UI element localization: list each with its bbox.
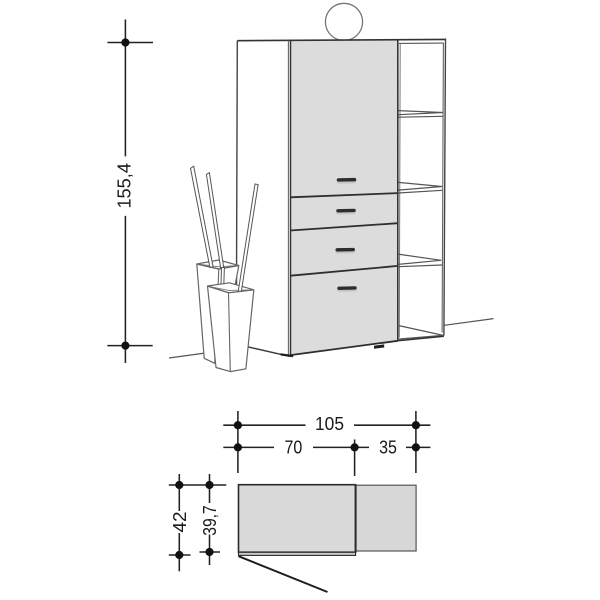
svg-text:42: 42 bbox=[169, 512, 190, 533]
svg-text:70: 70 bbox=[285, 436, 303, 457]
svg-text:155,4: 155,4 bbox=[114, 163, 135, 209]
svg-text:39,7: 39,7 bbox=[199, 505, 220, 536]
svg-text:105: 105 bbox=[315, 413, 344, 434]
svg-text:35: 35 bbox=[379, 436, 397, 457]
